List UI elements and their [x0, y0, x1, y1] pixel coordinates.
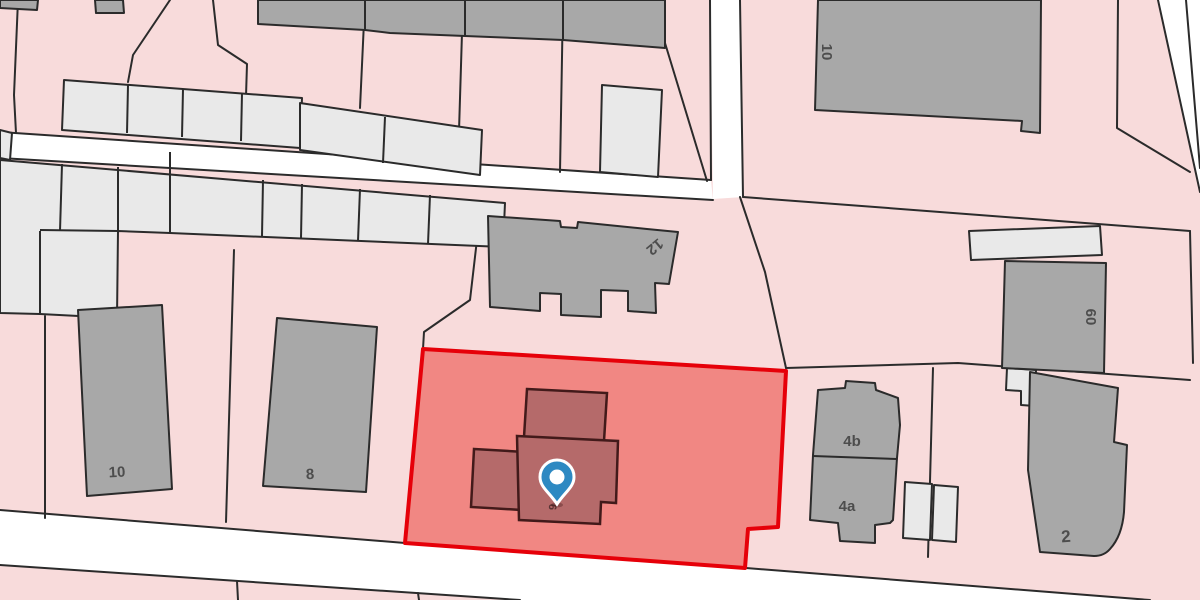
garage-right-1: [903, 482, 932, 540]
highlighted-building-top: [524, 389, 607, 441]
house-number-4b: 4b: [843, 433, 861, 450]
garage-right-2: [932, 485, 958, 542]
building-4a-4b: [810, 381, 900, 543]
highlighted-parcel-group: [405, 349, 786, 568]
pin-inner-circle: [550, 470, 565, 485]
house-number-10-top-right: 10: [818, 44, 835, 61]
road-vertical: [710, 0, 743, 199]
building-8: [263, 318, 377, 492]
building-top-left-b: [95, 0, 124, 13]
house-number-4a: 4a: [839, 498, 856, 515]
house-number-60: 60: [1082, 309, 1099, 326]
house-number-2: 2: [1061, 527, 1072, 547]
house-number-10-left: 10: [108, 464, 126, 482]
building-top-left-a: [0, 0, 38, 10]
house-number-8: 8: [305, 466, 314, 483]
building-light-right: [969, 226, 1102, 260]
building-12: [488, 216, 678, 317]
building-light-standalone: [600, 85, 662, 177]
building-light-edge: [0, 130, 12, 160]
building-2: [1028, 372, 1127, 556]
cadastral-map[interactable]: 10 12 10 8 4b 4a 2 60 6: [0, 0, 1200, 600]
